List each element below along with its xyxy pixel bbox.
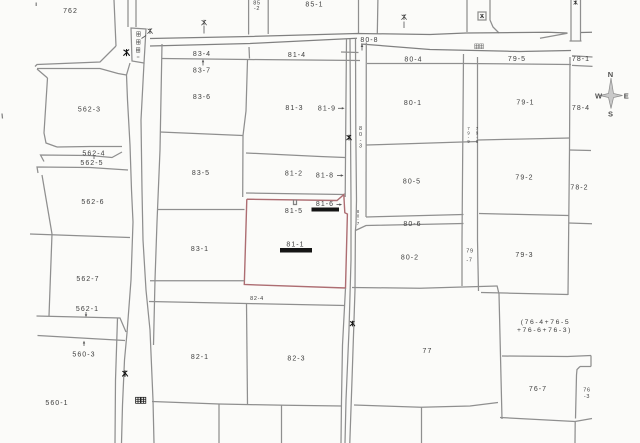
- svg-text:83-7: 83-7: [193, 68, 211, 75]
- svg-text:77: 77: [423, 348, 433, 355]
- svg-text:N: N: [608, 70, 613, 79]
- svg-text:562-3: 562-3: [78, 107, 101, 114]
- svg-text:76: 76: [583, 388, 591, 394]
- svg-text:W: W: [595, 92, 603, 101]
- svg-text:82-1: 82-1: [191, 354, 209, 361]
- svg-text:78-2: 78-2: [570, 185, 588, 192]
- svg-text:81-6: 81-6: [316, 201, 334, 208]
- svg-text:83-5: 83-5: [192, 170, 210, 177]
- svg-text:80-4: 80-4: [404, 57, 422, 64]
- svg-text:562-1: 562-1: [76, 306, 99, 313]
- svg-text:83-4: 83-4: [193, 51, 211, 58]
- svg-text:762: 762: [63, 8, 78, 15]
- svg-text:80-8: 80-8: [360, 37, 378, 44]
- svg-text:562-5: 562-5: [80, 160, 103, 167]
- svg-text:(76-4+76-5: (76-4+76-5: [521, 319, 570, 326]
- svg-text:78-1: 78-1: [572, 56, 590, 63]
- svg-text:E: E: [624, 92, 629, 101]
- svg-text:83-6: 83-6: [193, 94, 211, 101]
- svg-text:562-6: 562-6: [81, 199, 104, 206]
- svg-text:80-1: 80-1: [404, 100, 422, 107]
- svg-text:+76-6+76-3): +76-6+76-3): [517, 327, 572, 334]
- svg-text:3: 3: [359, 144, 362, 150]
- svg-text:83-1: 83-1: [191, 246, 209, 253]
- svg-text:78-4: 78-4: [572, 105, 590, 112]
- svg-text:562-4: 562-4: [82, 151, 105, 158]
- svg-text:76-7: 76-7: [529, 386, 547, 393]
- svg-text:-7: -7: [466, 258, 472, 264]
- svg-text:81-2: 81-2: [285, 171, 303, 178]
- svg-text:560-1: 560-1: [45, 400, 68, 407]
- svg-text:81-4: 81-4: [288, 52, 306, 59]
- svg-text:85-1: 85-1: [305, 2, 323, 9]
- svg-text:80-6: 80-6: [403, 221, 421, 228]
- svg-text:79-3: 79-3: [515, 252, 533, 259]
- svg-text:S: S: [608, 110, 613, 119]
- svg-text:81-3: 81-3: [285, 105, 303, 112]
- svg-text:81-8: 81-8: [316, 173, 334, 180]
- svg-text:-2: -2: [254, 6, 260, 12]
- svg-text:81-1: 81-1: [286, 242, 304, 249]
- svg-text:562-7: 562-7: [76, 276, 99, 283]
- svg-text:80-2: 80-2: [401, 255, 419, 262]
- svg-text:82-3: 82-3: [287, 356, 305, 363]
- svg-text:-3: -3: [584, 394, 590, 400]
- svg-text:80-5: 80-5: [403, 179, 421, 186]
- svg-text:79: 79: [466, 249, 474, 255]
- svg-text:81-9: 81-9: [318, 106, 336, 113]
- svg-text:79-5: 79-5: [508, 56, 526, 63]
- svg-text:82-4: 82-4: [250, 296, 264, 302]
- svg-text:560-3: 560-3: [72, 352, 95, 359]
- svg-text:81-5: 81-5: [285, 208, 303, 215]
- svg-text:79-2: 79-2: [515, 175, 533, 182]
- svg-text:79-1: 79-1: [516, 100, 534, 107]
